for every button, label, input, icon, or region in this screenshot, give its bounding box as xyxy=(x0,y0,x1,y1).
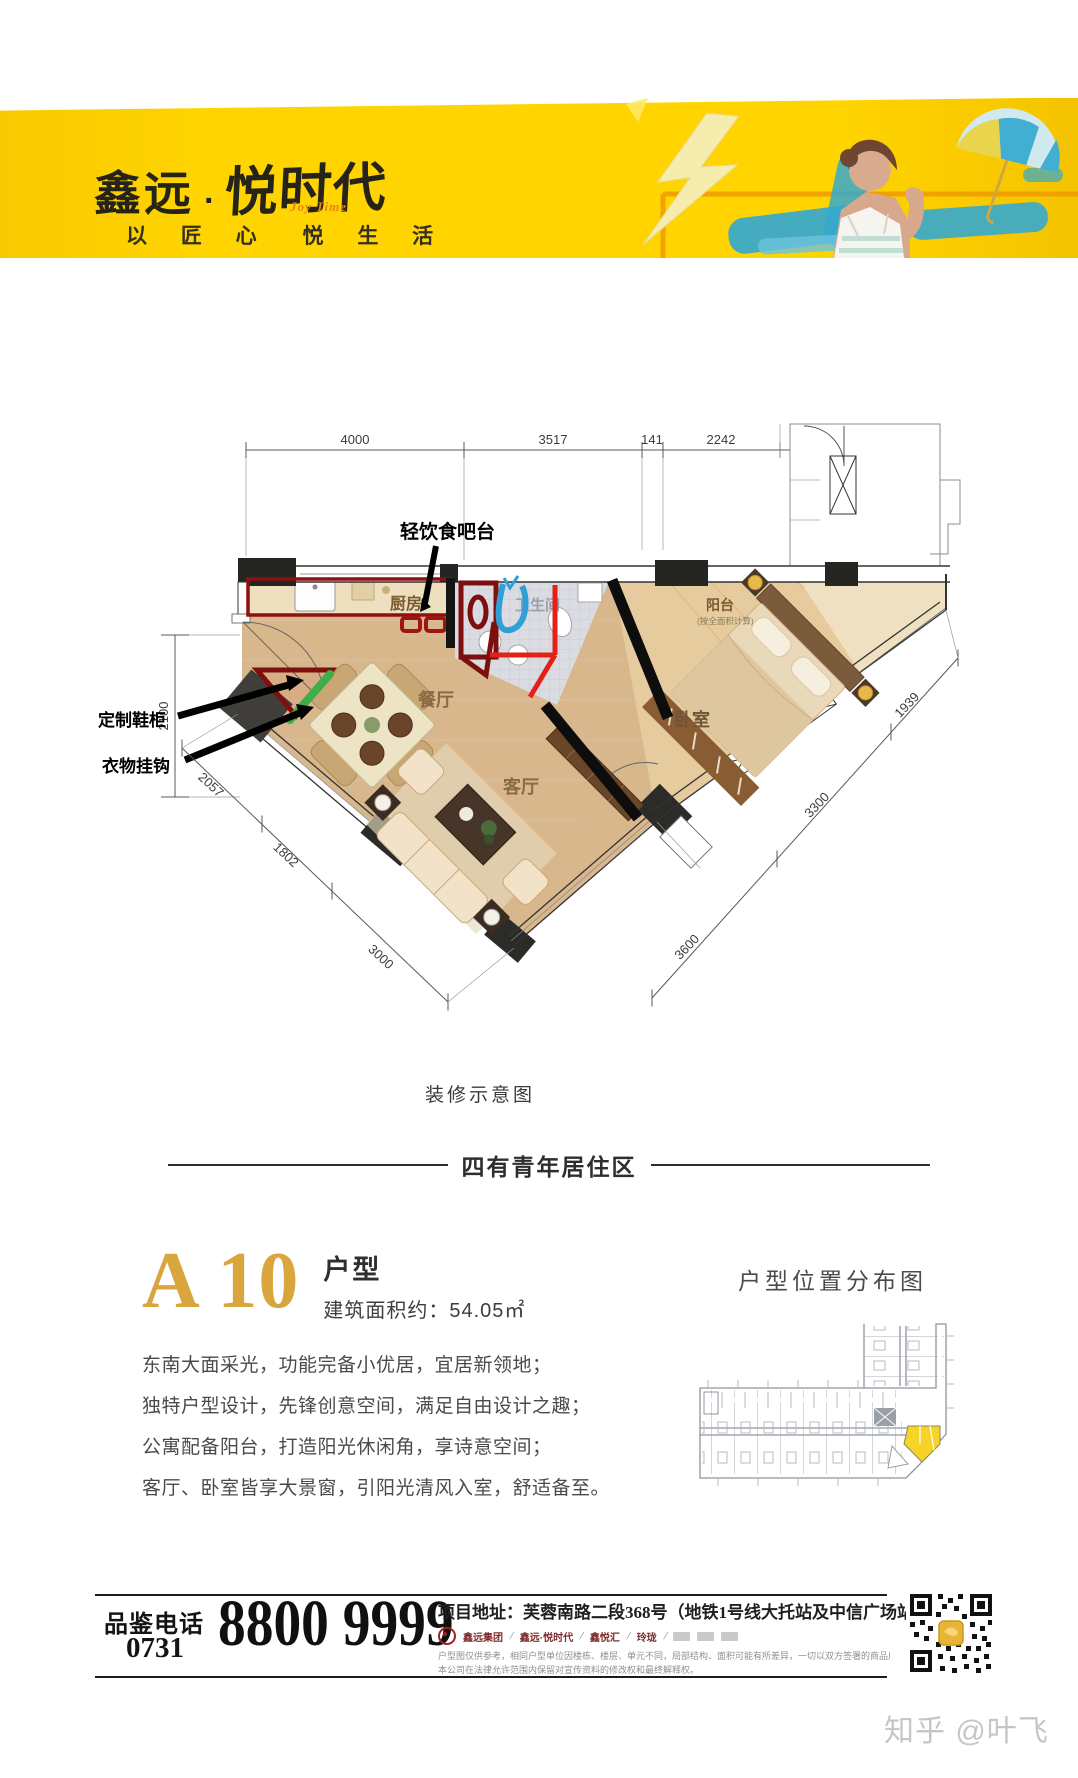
description-line: 东南大面采光，功能完备小优居，宜居新领地； xyxy=(142,1350,612,1377)
brand-separator: / xyxy=(662,1631,668,1642)
brand-logos-row: 鑫远集团 / 鑫远·悦时代 / 鑫悦汇 / 玲珑 / xyxy=(438,1627,738,1645)
tagline-part1: 以 匠 心 xyxy=(126,225,271,248)
header-art xyxy=(608,98,1078,258)
brand-separator: / xyxy=(508,1631,514,1642)
dim-1802: 1802 xyxy=(270,839,301,870)
disclaimer-line: 本公司在法律允许范围内保留对宣传资料的修改权和最终解释权。 xyxy=(438,1663,890,1676)
exterior-structures xyxy=(790,424,960,572)
label-bar-annotation: 轻饮食吧台 xyxy=(400,520,495,543)
disclaimer-line: 户型图仅供参考，相同户型单位因楼栋、楼层、单元不同，局部结构、面积可能有所差异，… xyxy=(438,1649,890,1662)
dim-2057: 2057 xyxy=(195,769,226,800)
dimension-left xyxy=(161,635,240,797)
brand-item: 玲珑 xyxy=(637,1629,657,1644)
brand-separator: / xyxy=(625,1631,631,1642)
label-bedroom: 卧室 xyxy=(674,709,710,730)
joytime-script: Joy Time xyxy=(290,199,347,215)
footer-rule-bottom xyxy=(95,1676,887,1678)
brand-item: 鑫悦汇 xyxy=(590,1629,620,1644)
brand-name: 鑫远 xyxy=(94,155,194,224)
brand-separator: / xyxy=(578,1631,584,1642)
divider-line-right xyxy=(651,1164,931,1166)
unit-type-label: 户型 xyxy=(323,1248,525,1287)
poster-page: 鑫远 · 悦时代 Joy Time 以 匠 心 悦 生 活 xyxy=(0,0,1078,1778)
dim-2242: 2242 xyxy=(707,432,736,447)
footer-rule-top xyxy=(95,1594,887,1596)
small-logo-placeholder xyxy=(721,1632,738,1641)
section-divider: 四有青年居住区 xyxy=(168,1148,930,1182)
tagline-part2: 悦 生 活 xyxy=(303,225,448,248)
unit-meta: 户型 建筑面积约：54.05㎡ xyxy=(323,1238,525,1323)
divider-title: 四有青年居住区 xyxy=(462,1148,637,1182)
phone-area-code: 0731 xyxy=(126,1632,184,1665)
brand-separator-dot: · xyxy=(204,184,215,224)
plan-caption: 装修示意图 xyxy=(360,1080,600,1107)
dim-1939: 1939 xyxy=(891,689,922,720)
label-balcony-note: (按全面积计算) xyxy=(697,616,754,626)
description-line: 独特户型设计，先锋创意空间，满足自由设计之趣； xyxy=(142,1391,612,1418)
label-shoe-annotation: 定制鞋柜 xyxy=(98,710,166,730)
unit-description: 东南大面采光，功能完备小优居，宜居新领地； 独特户型设计，先锋创意空间，满足自由… xyxy=(142,1350,612,1514)
small-logo-placeholder xyxy=(673,1632,690,1641)
qr-code xyxy=(906,1590,996,1676)
divider-line-left xyxy=(168,1164,448,1166)
label-dining: 餐厅 xyxy=(417,689,454,710)
dim-141: 141 xyxy=(641,432,663,447)
description-line: 公寓配备阳台，打造阳光休闲角，享诗意空间； xyxy=(142,1432,612,1459)
brand-tagline: 以 匠 心 悦 生 活 xyxy=(126,220,447,250)
dim-3300: 3300 xyxy=(801,789,832,820)
phone-number: 8800 9999 xyxy=(218,1586,454,1662)
label-balcony: 阳台 xyxy=(706,597,734,613)
label-living: 客厅 xyxy=(503,776,539,797)
unit-info: A 10 户型 建筑面积约：54.05㎡ xyxy=(142,1238,525,1324)
unit-area: 建筑面积约：54.05㎡ xyxy=(323,1294,525,1323)
floor-plan: 4000 3517 141 2242 1200 2100 xyxy=(90,360,1010,1060)
project-address: 项目地址：芙蓉南路二段368号（地铁1号线大托站及中信广场站旁） xyxy=(438,1598,890,1623)
brand-item: 鑫远集团 xyxy=(463,1629,503,1644)
small-logo-placeholder xyxy=(697,1632,714,1641)
brand-item: 鑫远·悦时代 xyxy=(520,1629,573,1644)
label-kitchen: 厨房 xyxy=(390,594,422,613)
label-hook-annotation: 衣物挂钩 xyxy=(102,756,170,776)
building-locator-map xyxy=(688,1316,1028,1506)
unit-code: A 10 xyxy=(142,1238,299,1324)
dim-3000: 3000 xyxy=(365,941,396,972)
lightning-decor xyxy=(626,98,743,254)
header-banner: 鑫远 · 悦时代 Joy Time 以 匠 心 悦 生 活 xyxy=(0,98,1078,258)
dim-4000: 4000 xyxy=(341,432,370,447)
watermark: 知乎 @叶飞 xyxy=(884,1706,1049,1750)
dim-3517: 3517 xyxy=(539,432,568,447)
locator-title: 户型位置分布图 xyxy=(738,1262,927,1296)
brand-logo-icon xyxy=(438,1627,456,1645)
description-line: 客厅、卧室皆享大景窗，引阳光清风入室，舒适备至。 xyxy=(142,1473,612,1500)
